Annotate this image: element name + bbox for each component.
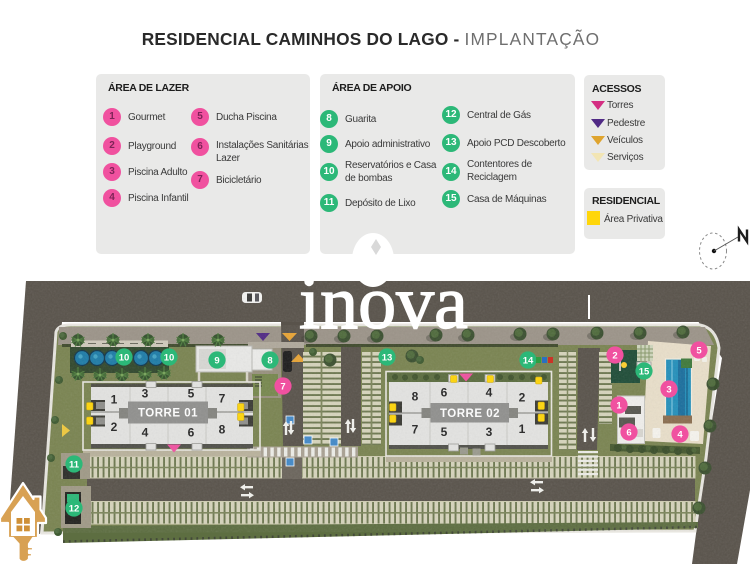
svg-text:inova: inova [299, 261, 468, 340]
svg-text:14: 14 [523, 356, 534, 367]
svg-text:7: 7 [280, 382, 285, 393]
svg-text:12: 12 [69, 504, 80, 515]
svg-text:3: 3 [666, 385, 671, 396]
svg-text:1: 1 [616, 401, 622, 412]
svg-text:2: 2 [612, 351, 617, 362]
svg-text:13: 13 [382, 353, 393, 364]
svg-text:10: 10 [119, 353, 130, 364]
svg-text:5: 5 [696, 346, 702, 357]
svg-text:4: 4 [677, 430, 683, 441]
svg-text:11: 11 [69, 460, 80, 471]
svg-text:8: 8 [267, 356, 272, 367]
svg-text:15: 15 [639, 367, 650, 378]
svg-text:10: 10 [164, 353, 175, 364]
svg-text:9: 9 [214, 356, 219, 367]
svg-text:6: 6 [626, 428, 631, 439]
